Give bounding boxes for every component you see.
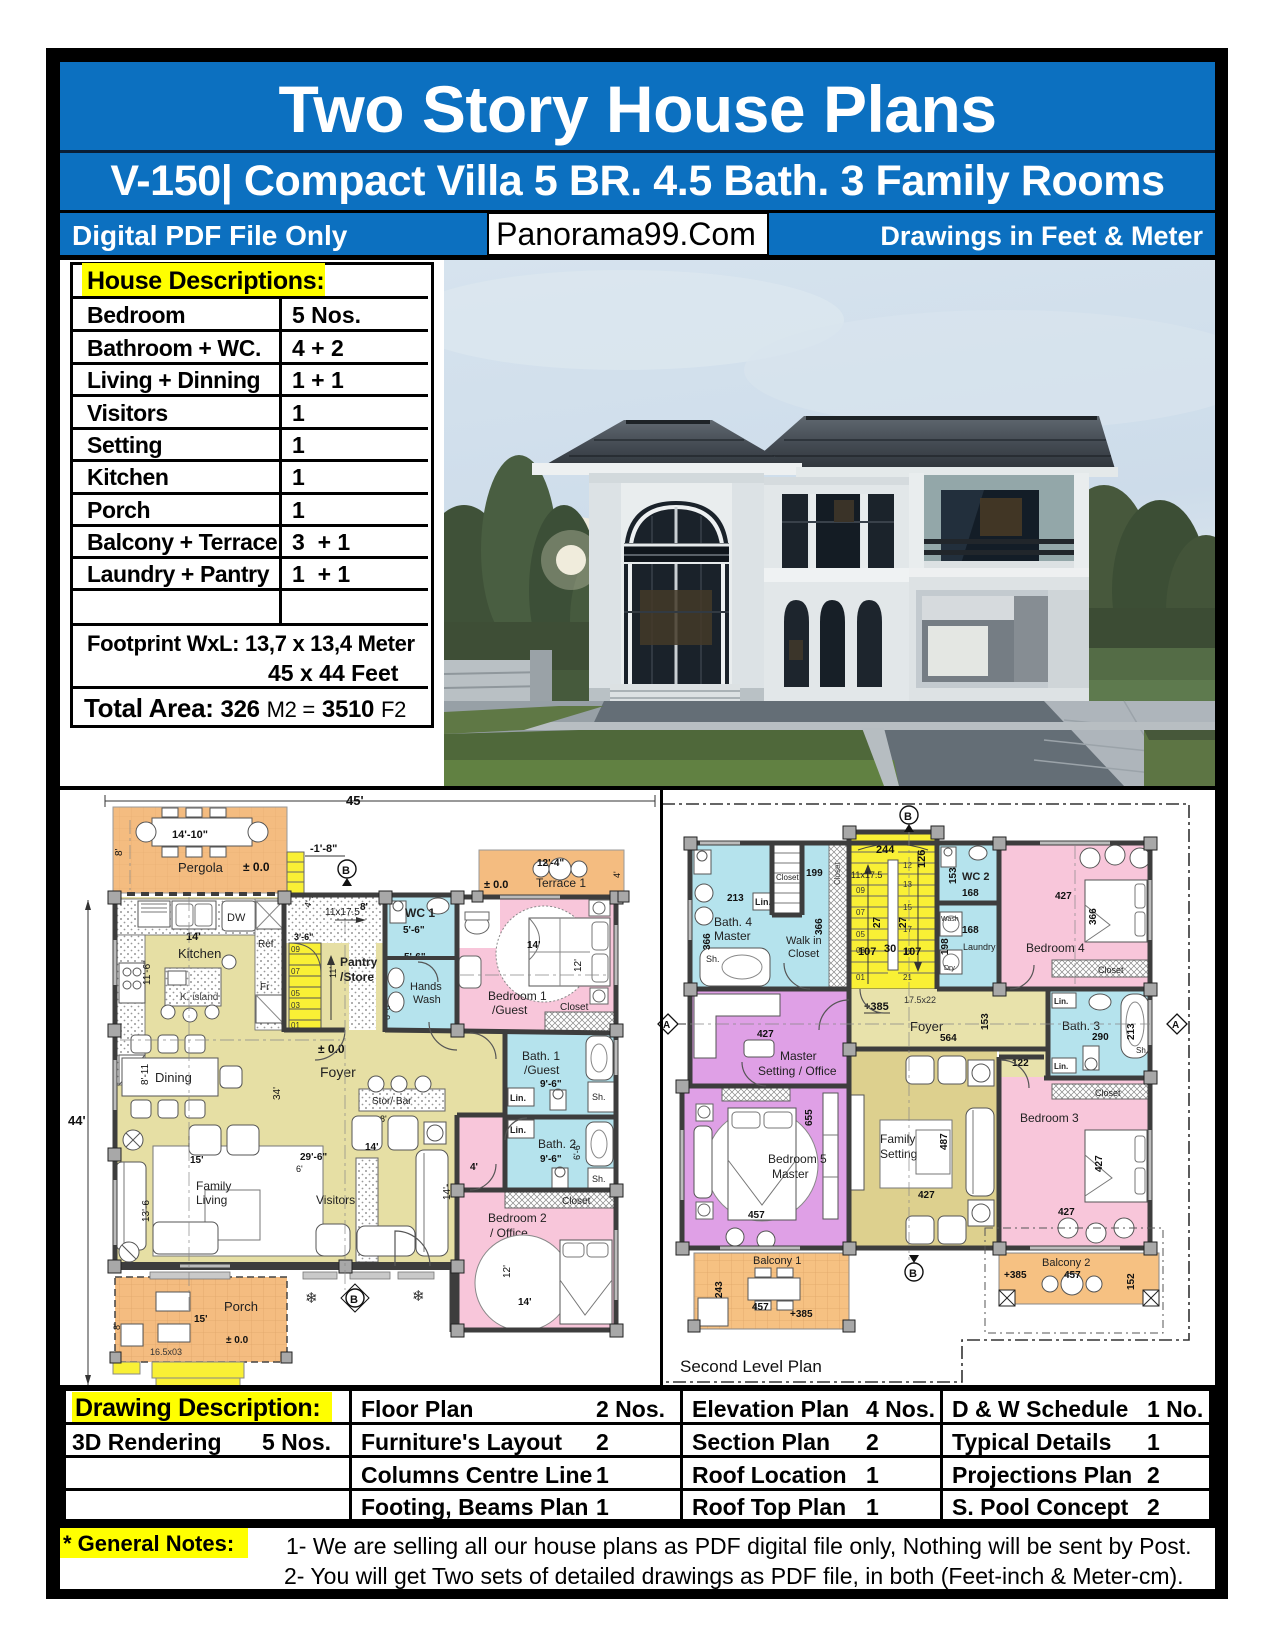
svg-text:+385: +385 (1004, 1270, 1027, 1281)
svg-text:Foyer: Foyer (910, 1019, 944, 1034)
svg-text:Balcony 1: Balcony 1 (753, 1255, 801, 1267)
svg-text:14': 14' (518, 1297, 532, 1308)
svg-text:44': 44' (68, 1113, 86, 1128)
svg-text:14'-10": 14'-10" (172, 829, 208, 841)
svg-text:15': 15' (190, 1155, 204, 1166)
svg-text:Second Level Plan: Second Level Plan (680, 1357, 822, 1376)
svg-text:01: 01 (856, 973, 865, 982)
svg-text:15': 15' (194, 1314, 208, 1325)
svg-text:Lin.: Lin. (510, 1093, 526, 1103)
svg-text:290: 290 (1092, 1032, 1109, 1043)
svg-text:655: 655 (804, 1109, 815, 1126)
svg-text:Lin.: Lin. (755, 897, 771, 907)
svg-text:487: 487 (939, 1133, 950, 1150)
svg-text:Porch: Porch (224, 1299, 258, 1314)
svg-text:Lin.: Lin. (510, 1125, 526, 1135)
svg-text:11x17.5: 11x17.5 (325, 907, 360, 918)
svg-text:9'-6": 9'-6" (540, 1079, 562, 1090)
svg-text:Closet: Closet (1095, 1088, 1121, 1098)
svg-text:Foyer: Foyer (320, 1064, 356, 1080)
svg-text:Sh.: Sh. (706, 954, 720, 964)
svg-text:Kitchen: Kitchen (178, 946, 221, 961)
svg-text:366: 366 (1088, 908, 1099, 925)
svg-text:27: 27 (898, 916, 909, 928)
svg-text:Lin.: Lin. (1054, 1062, 1068, 1071)
svg-text:153: 153 (980, 1013, 991, 1030)
svg-text:07: 07 (291, 967, 300, 976)
svg-text:Dry: Dry (944, 965, 955, 972)
svg-text:12'-4": 12'-4" (537, 858, 564, 869)
svg-text:13: 13 (903, 880, 912, 889)
svg-text:Closet: Closet (776, 873, 799, 882)
svg-text:Lin.: Lin. (1054, 997, 1068, 1006)
svg-text:168: 168 (962, 888, 979, 899)
svg-text:-1'-8": -1'-8" (310, 843, 337, 855)
svg-text:12': 12' (573, 959, 584, 972)
svg-text:Setting: Setting (880, 1147, 917, 1161)
svg-text:Dining: Dining (155, 1070, 192, 1085)
svg-text:Bedroom 2: Bedroom 2 (488, 1211, 547, 1225)
svg-text:12: 12 (903, 861, 912, 870)
svg-text:03: 03 (291, 1001, 300, 1010)
svg-text:107: 107 (858, 946, 876, 958)
svg-text:Bath. 3: Bath. 3 (1062, 1019, 1100, 1033)
svg-text:B: B (904, 811, 912, 823)
svg-text:K. island: K. island (180, 992, 218, 1003)
svg-text:Stor/ Bar: Stor/ Bar (372, 1096, 412, 1107)
svg-text:Bedroom 3: Bedroom 3 (1020, 1111, 1079, 1125)
svg-text:427: 427 (1058, 1207, 1075, 1218)
svg-text:Bedroom 4: Bedroom 4 (1026, 941, 1085, 955)
svg-text:A: A (1172, 1020, 1179, 1031)
svg-text:Laundry: Laundry (963, 942, 996, 952)
svg-text:09: 09 (856, 886, 865, 895)
svg-text:Closet: Closet (560, 1002, 589, 1013)
svg-text:Pantry: Pantry (340, 955, 378, 969)
svg-text:8': 8' (112, 1323, 122, 1330)
svg-text:Master: Master (780, 1049, 817, 1063)
svg-text:Family: Family (196, 1179, 231, 1193)
svg-text:Sh.: Sh. (1136, 1046, 1148, 1055)
svg-text:Bath. 4: Bath. 4 (714, 915, 752, 929)
svg-text:WC 2: WC 2 (962, 871, 990, 883)
svg-text:199: 199 (806, 868, 823, 879)
svg-text:Setting / Office: Setting / Office (758, 1064, 837, 1078)
svg-text:± 0.0: ± 0.0 (226, 1335, 249, 1346)
svg-text:/Guest: /Guest (492, 1003, 528, 1017)
svg-text:14': 14' (527, 940, 541, 951)
svg-text:Balcony 2: Balcony 2 (1042, 1257, 1090, 1269)
svg-text:± 0.0: ± 0.0 (484, 879, 508, 891)
svg-text:Closet: Closet (833, 862, 842, 885)
svg-text:❄: ❄ (305, 1290, 318, 1307)
svg-text:Visitors: Visitors (316, 1193, 355, 1207)
svg-text:Terrace 1: Terrace 1 (536, 876, 586, 890)
svg-text:16.5x03: 16.5x03 (150, 1347, 182, 1357)
svg-text:457: 457 (752, 1302, 769, 1313)
svg-text:366: 366 (702, 933, 713, 950)
svg-text:6'-6": 6'-6" (572, 1142, 582, 1160)
svg-text:DW: DW (227, 912, 246, 924)
svg-text:Fr: Fr (260, 982, 270, 993)
svg-text:152: 152 (1126, 1273, 1137, 1290)
svg-text:Hands: Hands (410, 981, 442, 993)
svg-text:457: 457 (1064, 1270, 1081, 1281)
svg-text:4': 4' (470, 1162, 478, 1173)
svg-text:14': 14' (365, 1142, 379, 1153)
svg-text:Sh.: Sh. (592, 1092, 606, 1102)
svg-text:09: 09 (291, 945, 300, 954)
svg-text:244: 244 (876, 844, 895, 856)
svg-text:❄: ❄ (412, 1288, 425, 1305)
svg-text:Closet: Closet (788, 948, 819, 960)
svg-text:243: 243 (714, 1281, 725, 1298)
svg-text:427: 427 (1094, 1155, 1105, 1172)
svg-text:Closet: Closet (562, 1196, 591, 1207)
svg-text:Bedroom 1: Bedroom 1 (488, 989, 547, 1003)
svg-text:457: 457 (748, 1210, 765, 1221)
svg-text:107: 107 (903, 946, 921, 958)
svg-text:13'-6: 13'-6 (141, 1200, 152, 1222)
svg-text:Living: Living (196, 1193, 227, 1207)
svg-text:34': 34' (272, 1087, 283, 1100)
svg-text:8': 8' (114, 848, 125, 856)
svg-text:A: A (663, 1020, 670, 1031)
svg-text:21: 21 (903, 973, 912, 982)
svg-text:8': 8' (360, 902, 368, 913)
svg-text:11'-6": 11'-6" (142, 960, 153, 985)
svg-text:9'-6": 9'-6" (540, 1154, 562, 1165)
svg-text:27: 27 (872, 916, 883, 928)
svg-text:Family: Family (880, 1132, 915, 1146)
svg-text:366: 366 (814, 918, 825, 935)
svg-text:B: B (909, 1268, 917, 1280)
svg-text:14': 14' (186, 931, 201, 943)
svg-text:Walk in: Walk in (786, 935, 822, 947)
svg-text:05: 05 (856, 930, 865, 939)
svg-text:213: 213 (1126, 1023, 1137, 1040)
svg-text:Ref: Ref (258, 939, 274, 950)
svg-text:05: 05 (291, 989, 300, 998)
svg-text:427: 427 (1055, 891, 1072, 902)
svg-text:45': 45' (346, 793, 364, 808)
svg-text:Wash: Wash (413, 994, 441, 1006)
svg-text:30: 30 (884, 943, 896, 955)
svg-text:8'-11: 8'-11 (140, 1063, 151, 1085)
svg-text:126: 126 (916, 850, 928, 868)
svg-text:427: 427 (757, 1029, 774, 1040)
svg-text:B: B (350, 1294, 358, 1306)
svg-text:Bedroom 5: Bedroom 5 (768, 1152, 827, 1166)
svg-text:WC 1: WC 1 (405, 906, 435, 920)
svg-text:153: 153 (948, 867, 959, 884)
svg-text:11x17.5: 11x17.5 (851, 870, 882, 880)
svg-text:+385: +385 (790, 1309, 813, 1320)
svg-text:15: 15 (903, 903, 912, 912)
svg-text:Closet: Closet (1098, 965, 1124, 975)
svg-text:11': 11' (328, 967, 338, 978)
svg-text:Wash: Wash (941, 916, 959, 923)
svg-text:Master: Master (772, 1167, 809, 1181)
svg-text:07: 07 (856, 908, 865, 917)
svg-text:427: 427 (918, 1190, 935, 1201)
svg-text:± 0.0: ± 0.0 (243, 860, 270, 874)
svg-text:/Guest: /Guest (524, 1063, 560, 1077)
svg-text:213: 213 (727, 893, 744, 904)
svg-text:4': 4' (612, 871, 622, 878)
svg-text:Master: Master (714, 929, 751, 943)
svg-text:B: B (342, 865, 350, 877)
svg-text:564: 564 (940, 1033, 957, 1044)
svg-text:Pergola: Pergola (178, 860, 224, 875)
svg-text:198: 198 (940, 938, 951, 955)
svg-text:12': 12' (502, 1265, 513, 1278)
svg-text:3'-6": 3'-6" (294, 932, 313, 942)
svg-text:5'-6": 5'-6" (403, 925, 425, 936)
svg-text:Bath. 1: Bath. 1 (522, 1049, 560, 1063)
svg-text:Bath. 2: Bath. 2 (538, 1137, 576, 1151)
svg-text:29'-6": 29'-6" (300, 1152, 327, 1163)
svg-text:168: 168 (962, 925, 979, 936)
svg-text:Sh.: Sh. (592, 1174, 606, 1184)
svg-text:6': 6' (296, 1164, 303, 1174)
